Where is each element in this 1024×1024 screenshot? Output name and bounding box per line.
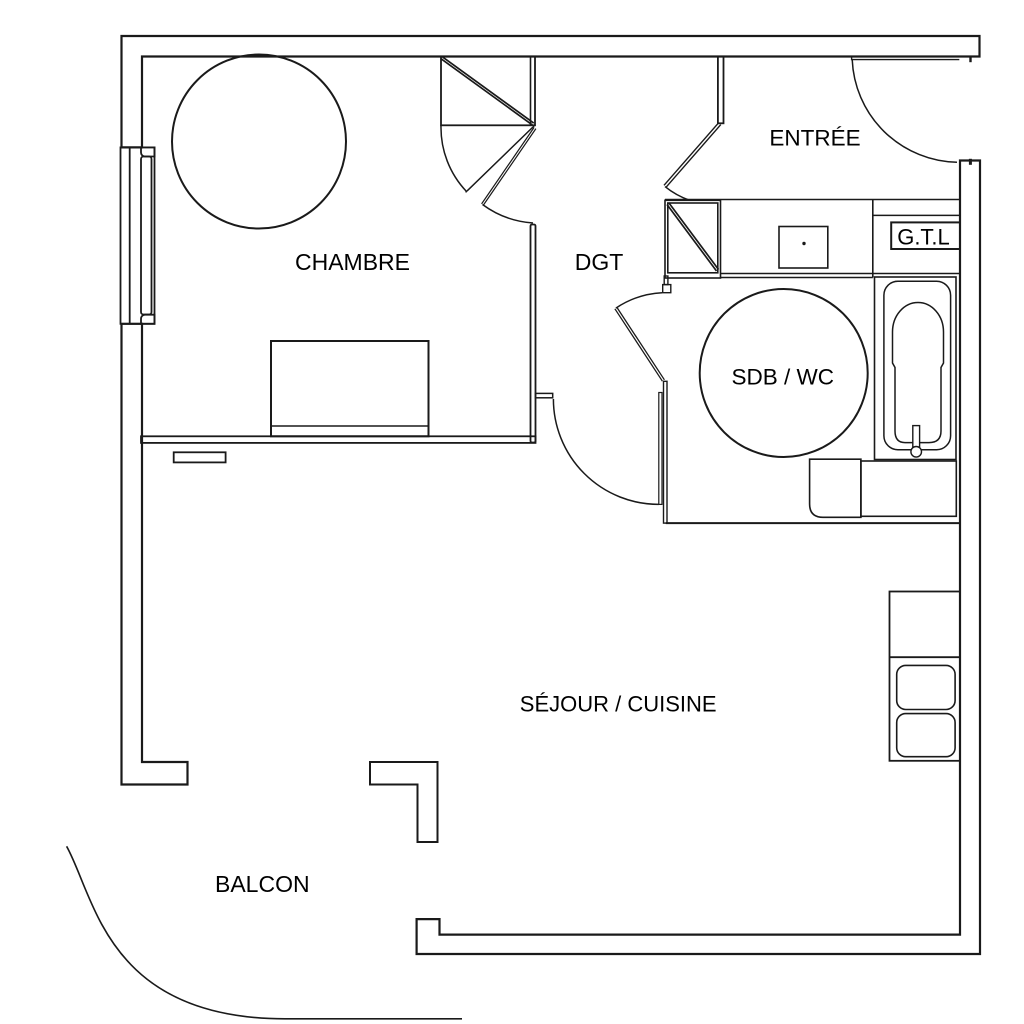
svg-text:SDB / WC: SDB / WC: [731, 365, 834, 390]
svg-text:G.T.L: G.T.L: [897, 225, 950, 250]
svg-text:DGT: DGT: [575, 249, 624, 275]
svg-text:BALCON: BALCON: [215, 871, 310, 897]
svg-text:ENTRÉE: ENTRÉE: [769, 126, 860, 151]
svg-text:CHAMBRE: CHAMBRE: [295, 249, 410, 275]
svg-text:SÉJOUR / CUISINE: SÉJOUR / CUISINE: [520, 692, 717, 717]
